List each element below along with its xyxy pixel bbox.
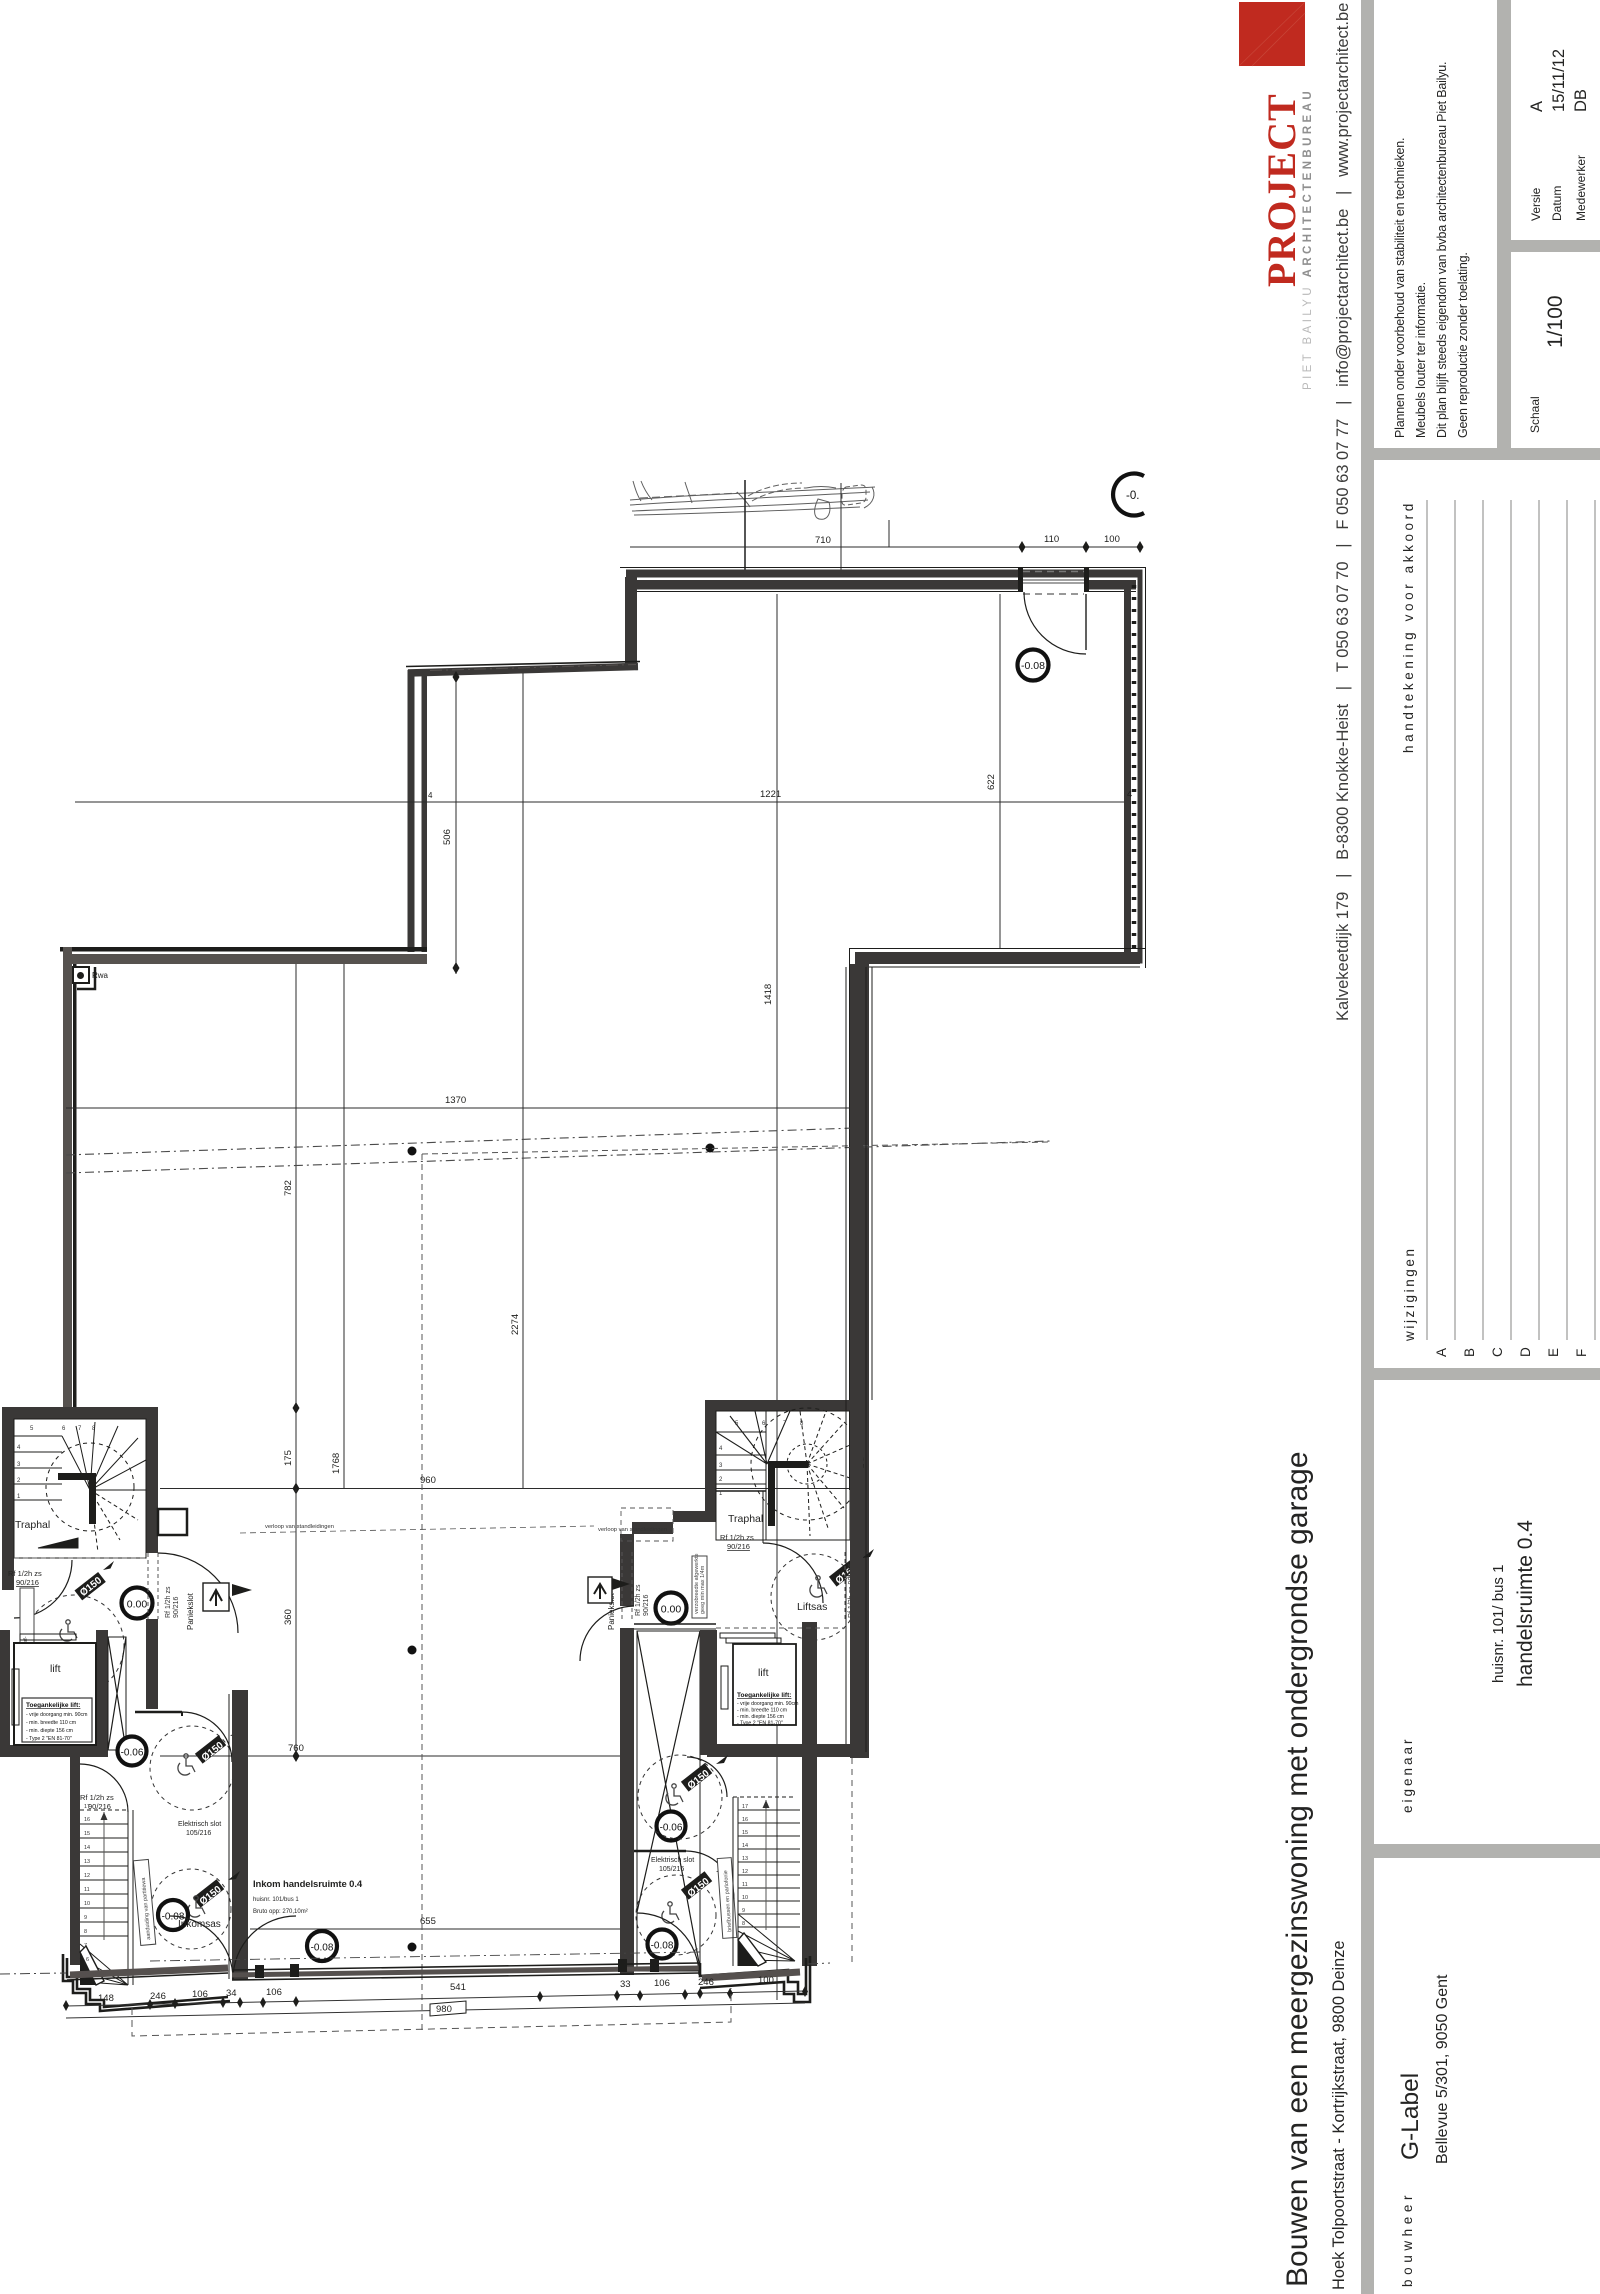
svg-text:-0.06: -0.06 — [660, 1823, 683, 1834]
svg-text:Liftsas: Liftsas — [797, 1601, 827, 1613]
svg-text:15: 15 — [84, 1831, 90, 1837]
svg-text:verloop van standleidingen: verloop van standleidingen — [598, 1527, 667, 1533]
svg-text:2: 2 — [17, 1478, 21, 1484]
svg-text:760: 760 — [288, 1743, 304, 1754]
svg-text:eigenaar: eigenaar — [1400, 1736, 1415, 1813]
svg-text:verloop van standleidingen: verloop van standleidingen — [265, 1524, 334, 1530]
svg-text:246: 246 — [698, 1977, 714, 1988]
svg-text:lift: lift — [50, 1663, 61, 1675]
svg-text:Toegankelijke lift:: Toegankelijke lift: — [737, 1692, 791, 1699]
svg-text:12: 12 — [84, 1873, 90, 1879]
svg-text:Datum: Datum — [1550, 186, 1564, 221]
svg-text:Traphal: Traphal — [15, 1519, 50, 1531]
svg-text:9: 9 — [84, 1915, 87, 1921]
svg-text:6: 6 — [86, 1957, 89, 1963]
svg-text:246: 246 — [150, 1991, 166, 2002]
svg-text:Inkom handelsruimte 0.4: Inkom handelsruimte 0.4 — [253, 1879, 363, 1890]
svg-text:F: F — [1574, 1349, 1589, 1357]
svg-text:4: 4 — [17, 1445, 21, 1451]
svg-text:Bouwen van een meergezinswonin: Bouwen van een meergezinswoning met onde… — [1281, 1451, 1314, 2287]
svg-text:Dit plan blijft steeds eigendo: Dit plan blijft steeds eigendom van bvba… — [1435, 62, 1449, 438]
svg-text:- min. breedte 110 cm: - min. breedte 110 cm — [737, 1708, 787, 1714]
svg-text:wijzigingen: wijzigingen — [1402, 1246, 1417, 1342]
svg-text:PIET BAILYU ARCHITECTENBUREAU: PIET BAILYU ARCHITECTENBUREAU — [1302, 88, 1314, 390]
svg-text:Paniekslot: Paniekslot — [186, 1592, 195, 1630]
svg-text:bouwheer: bouwheer — [1400, 2191, 1415, 2287]
svg-text:11: 11 — [84, 1887, 90, 1893]
svg-text:Rwa: Rwa — [92, 971, 109, 980]
svg-text:14: 14 — [84, 1845, 90, 1851]
svg-text:175: 175 — [283, 1450, 294, 1466]
svg-text:1/100: 1/100 — [1544, 295, 1567, 348]
svg-text:33: 33 — [620, 1979, 631, 1990]
svg-text:10: 10 — [84, 1901, 90, 1907]
svg-text:100: 100 — [758, 1975, 774, 1986]
svg-text:16: 16 — [84, 1817, 90, 1823]
svg-text:Meubels louter ter informatie.: Meubels louter ter informatie. — [1414, 282, 1428, 438]
svg-text:-0.08: -0.08 — [1021, 660, 1045, 672]
svg-text:8: 8 — [92, 1426, 96, 1432]
svg-text:8: 8 — [800, 1421, 804, 1427]
svg-text:DB: DB — [1572, 89, 1590, 112]
svg-text:1221: 1221 — [760, 789, 781, 800]
svg-text:1: 1 — [17, 1494, 21, 1500]
svg-text:lift: lift — [758, 1667, 769, 1679]
svg-text:2: 2 — [719, 1477, 723, 1483]
svg-text:Bellevue 5/301, 9050 Gent: Bellevue 5/301, 9050 Gent — [1434, 1974, 1451, 2164]
svg-text:3: 3 — [17, 1462, 21, 1468]
svg-text:Traphal: Traphal — [728, 1513, 763, 1525]
svg-text:Medewerker: Medewerker — [1574, 155, 1588, 221]
svg-text:Bruto opp: 270,10m²: Bruto opp: 270,10m² — [253, 1909, 308, 1915]
svg-text:5: 5 — [30, 1426, 34, 1432]
svg-text:14: 14 — [742, 1843, 748, 1849]
svg-text:handtekening voor akkoord: handtekening voor akkoord — [1401, 500, 1416, 753]
svg-text:Elektrisch slot: Elektrisch slot — [178, 1821, 221, 1828]
svg-text:0.00: 0.00 — [661, 1604, 682, 1616]
svg-text:0.00: 0.00 — [127, 1599, 148, 1611]
svg-text:PROJECT: PROJECT — [1259, 93, 1304, 287]
svg-text:9: 9 — [742, 1908, 745, 1914]
svg-text:geeg min max 1/4m: geeg min max 1/4m — [700, 1565, 706, 1614]
svg-text:90/216: 90/216 — [727, 1542, 750, 1551]
svg-text:105/216: 105/216 — [659, 1866, 684, 1873]
svg-text:Plannen onder voorbehoud van s: Plannen onder voorbehoud van stabiliteit… — [1393, 138, 1407, 438]
svg-text:- min. diepte 156 cm: - min. diepte 156 cm — [26, 1728, 73, 1734]
svg-text:4: 4 — [1127, 789, 1132, 800]
svg-text:105/216: 105/216 — [186, 1830, 211, 1837]
svg-text:15: 15 — [742, 1830, 748, 1836]
svg-text:622: 622 — [986, 774, 997, 790]
svg-text:3: 3 — [719, 1463, 723, 1469]
svg-text:110: 110 — [1044, 534, 1059, 545]
svg-text:10: 10 — [742, 1895, 748, 1901]
svg-text:1: 1 — [719, 1491, 723, 1497]
svg-text:G-Label: G-Label — [1397, 2073, 1424, 2160]
svg-text:4: 4 — [719, 1446, 723, 1452]
svg-text:15/11/12: 15/11/12 — [1550, 49, 1568, 112]
svg-text:handelsruimte 0.4: handelsruimte 0.4 — [1514, 1520, 1537, 1687]
svg-text:Kalvekeetdijk 179 | B-8300: Kalvekeetdijk 179 | B-8300 Knokke-Heist … — [1334, 3, 1352, 1021]
svg-text:Rf 1/2h zs: Rf 1/2h zs — [635, 1584, 642, 1616]
svg-text:710: 710 — [815, 535, 831, 546]
svg-text:Versie: Versie — [1529, 187, 1543, 221]
svg-text:-0.08: -0.08 — [651, 1941, 674, 1952]
svg-text:506: 506 — [442, 829, 453, 845]
svg-text:-0.06: -0.06 — [121, 1748, 144, 1759]
svg-text:Rf 1/2h zs: Rf 1/2h zs — [720, 1533, 754, 1542]
svg-text:90/216: 90/216 — [88, 1802, 111, 1811]
svg-text:541: 541 — [450, 1982, 466, 1993]
svg-text:-0.08: -0.08 — [311, 1943, 334, 1954]
svg-text:1370: 1370 — [445, 1095, 466, 1106]
svg-text:huisnr. 101/bus 1: huisnr. 101/bus 1 — [253, 1897, 299, 1903]
svg-text:A: A — [1528, 101, 1546, 112]
svg-text:13: 13 — [742, 1856, 748, 1862]
svg-text:100: 100 — [1104, 534, 1120, 545]
svg-text:8: 8 — [742, 1921, 745, 1927]
svg-text:B: B — [1462, 1348, 1477, 1357]
svg-text:8: 8 — [84, 1929, 87, 1935]
svg-text:360: 360 — [283, 1609, 294, 1625]
svg-text:- vrije doorgang min. 90cm: - vrije doorgang min. 90cm — [26, 1712, 87, 1718]
svg-text:4: 4 — [428, 791, 433, 800]
svg-text:Schaal: Schaal — [1528, 396, 1542, 433]
svg-text:Hoek Tolpoortstraat - Kortrijk: Hoek Tolpoortstraat - Kortrijkstraat, 98… — [1330, 1940, 1348, 2290]
svg-text:106: 106 — [192, 1989, 208, 2000]
svg-text:- Type 2 "EN 81-70": - Type 2 "EN 81-70" — [737, 1721, 783, 1727]
svg-text:- vrije doorgang min. 90cm: - vrije doorgang min. 90cm — [737, 1701, 798, 1707]
svg-text:1768: 1768 — [331, 1453, 342, 1474]
svg-text:11: 11 — [742, 1882, 748, 1888]
svg-text:Inkomsas: Inkomsas — [178, 1919, 221, 1930]
svg-text:106: 106 — [266, 1987, 282, 1998]
svg-text:E: E — [1546, 1348, 1561, 1357]
svg-text:Elektrisch slot: Elektrisch slot — [651, 1857, 694, 1864]
svg-text:148: 148 — [98, 1993, 114, 2004]
svg-text:- min. diepte 156 cm: - min. diepte 156 cm — [737, 1714, 784, 1720]
svg-text:16: 16 — [742, 1817, 748, 1823]
svg-text:12: 12 — [742, 1869, 748, 1875]
svg-text:90/216: 90/216 — [643, 1594, 650, 1616]
svg-text:782: 782 — [283, 1180, 294, 1196]
svg-text:2274: 2274 — [510, 1314, 521, 1335]
svg-text:Toegankelijke lift:: Toegankelijke lift: — [26, 1702, 80, 1709]
svg-text:- min. breedte 110 cm: - min. breedte 110 cm — [26, 1720, 76, 1726]
svg-text:980: 980 — [436, 2004, 452, 2015]
svg-text:1418: 1418 — [763, 984, 774, 1005]
svg-text:17: 17 — [742, 1804, 748, 1810]
svg-text:D: D — [1518, 1347, 1533, 1357]
svg-text:17: 17 — [84, 1804, 90, 1810]
svg-text:34: 34 — [226, 1988, 237, 1999]
svg-text:C: C — [1490, 1347, 1505, 1357]
svg-text:7: 7 — [78, 1426, 82, 1432]
svg-text:106: 106 — [654, 1978, 670, 1989]
svg-text:90/216: 90/216 — [16, 1578, 39, 1587]
svg-text:13: 13 — [84, 1859, 90, 1865]
svg-text:7: 7 — [84, 1943, 87, 1949]
svg-text:90/216: 90/216 — [173, 1596, 180, 1618]
svg-text:A: A — [1434, 1348, 1449, 1357]
svg-text:7: 7 — [783, 1421, 787, 1427]
svg-text:huisnr. 101/ bus 1: huisnr. 101/ bus 1 — [1490, 1565, 1507, 1683]
svg-text:6: 6 — [62, 1426, 66, 1432]
svg-text:Geen reproductie zonder toelat: Geen reproductie zonder toelating. — [1456, 252, 1470, 438]
svg-text:Rf 1/2h zs: Rf 1/2h zs — [80, 1793, 114, 1802]
svg-text:- Type 2 "EN 81-70": - Type 2 "EN 81-70" — [26, 1736, 72, 1742]
svg-text:-0.: -0. — [1126, 490, 1139, 502]
svg-text:Rf 1/2h zs: Rf 1/2h zs — [165, 1586, 172, 1618]
svg-text:Rf 1/2h zs: Rf 1/2h zs — [8, 1569, 42, 1578]
